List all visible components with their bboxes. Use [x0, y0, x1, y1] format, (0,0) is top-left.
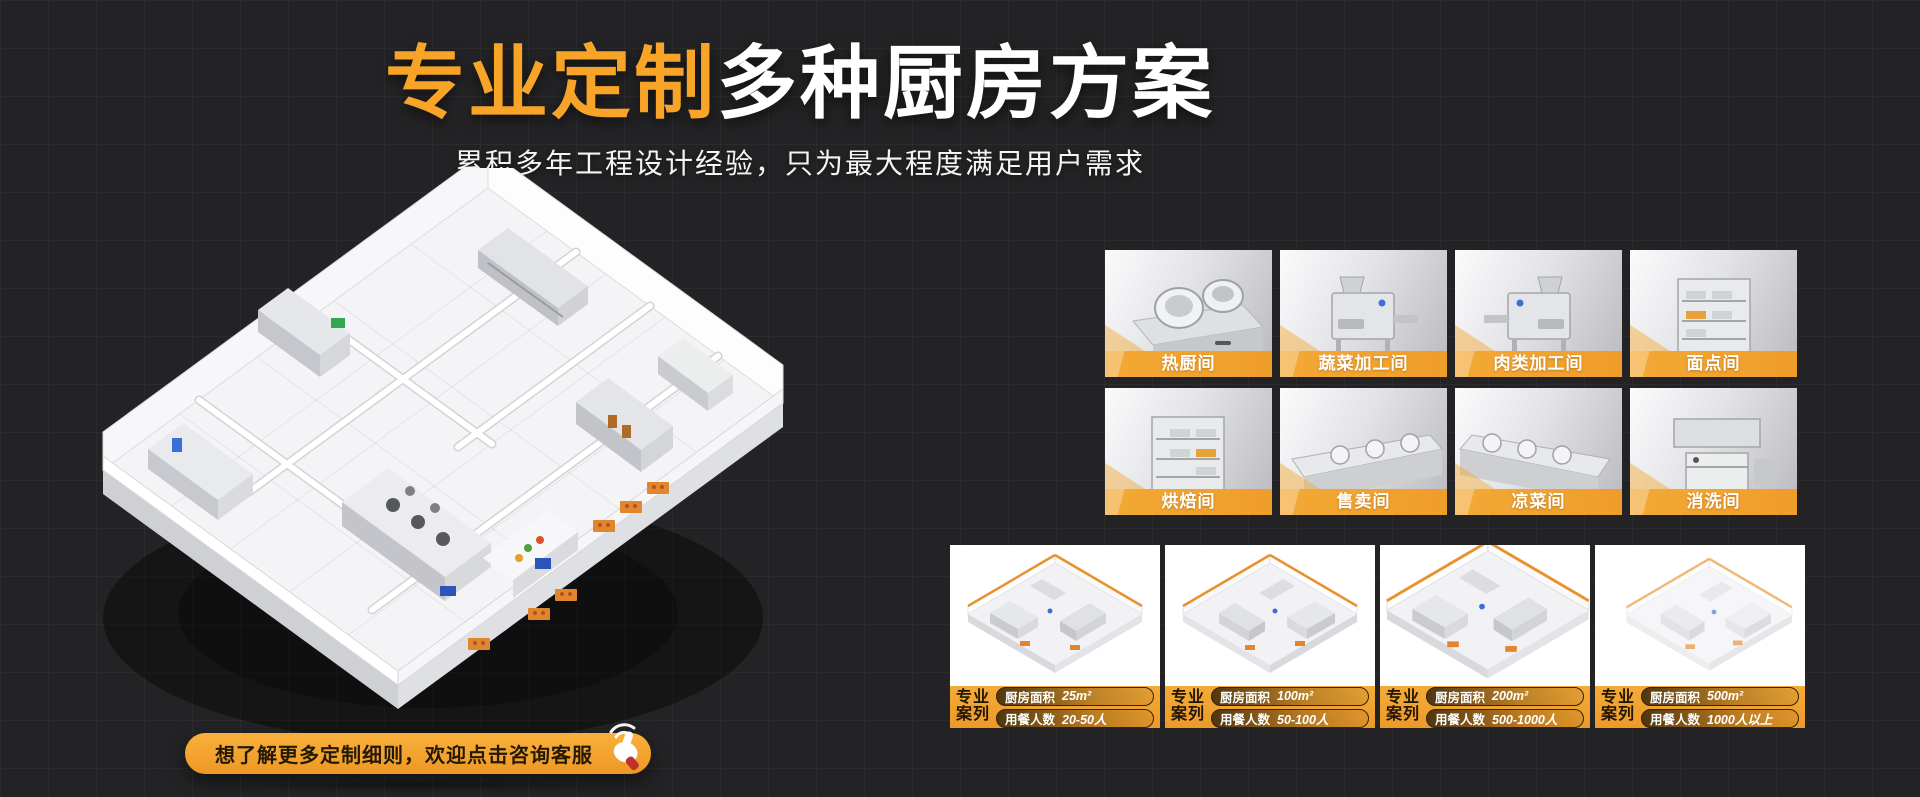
case-badge-line2: 案列 [1601, 707, 1635, 724]
case-footer: 专业 案列 厨房面积 500m² 用餐人数 1000人以上 [1595, 686, 1805, 728]
diners-label: 用餐人数 [1435, 709, 1485, 728]
kitchen-area-pill: 厨房面积 100m² [1211, 687, 1369, 706]
title-rest: 多种厨房方案 [717, 39, 1215, 128]
kitchen-area-label: 厨房面积 [1435, 687, 1485, 706]
room-label: 面点间 [1630, 351, 1797, 377]
case-badge: 专业 案列 [1386, 690, 1420, 724]
diners-value: 1000人以上 [1707, 709, 1772, 728]
case-render-illustration [1165, 545, 1375, 686]
consult-service-button[interactable]: 想了解更多定制细则，欢迎点击咨询客服 [185, 733, 651, 774]
case-kitchen-render [1165, 545, 1375, 686]
hand-click-icon [601, 719, 649, 771]
kitchen-area-label: 厨房面积 [1005, 687, 1055, 706]
kitchen-area-pill: 厨房面积 500m² [1641, 687, 1799, 706]
case-badge-line2: 案列 [1386, 707, 1420, 724]
case-badge: 专业 案列 [1601, 690, 1635, 724]
diners-label: 用餐人数 [1650, 709, 1700, 728]
room-tile-hot-kitchen: 热厨间 [1105, 250, 1272, 377]
kitchen-area-value: 100m² [1277, 689, 1313, 703]
room-tile-washing: 消洗间 [1630, 388, 1797, 515]
room-label: 蔬菜加工间 [1280, 351, 1447, 377]
room-tile-meat-processing: 肉类加工间 [1455, 250, 1622, 377]
case-kitchen-render [1595, 545, 1805, 686]
title-highlight: 专业定制 [385, 39, 717, 128]
kitchen-area-value: 500m² [1707, 689, 1743, 703]
case-specs: 厨房面积 500m² 用餐人数 1000人以上 [1641, 687, 1799, 728]
case-card-100m2: 专业 案列 厨房面积 100m² 用餐人数 50-100人 [1165, 545, 1375, 728]
kitchen-area-label: 厨房面积 [1220, 687, 1270, 706]
consult-service-label: 想了解更多定制细则，欢迎点击咨询客服 [215, 739, 593, 768]
case-footer: 专业 案列 厨房面积 200m² 用餐人数 500-1000人 [1380, 686, 1590, 728]
case-badge-line1: 专业 [1171, 690, 1205, 707]
case-gallery: 专业 案列 厨房面积 25m² 用餐人数 20-50人 专业 案列 [950, 545, 1805, 728]
case-specs: 厨房面积 200m² 用餐人数 500-1000人 [1426, 687, 1584, 728]
page-title: 专业定制多种厨房方案 [0, 42, 1600, 126]
case-footer: 专业 案列 厨房面积 25m² 用餐人数 20-50人 [950, 686, 1160, 728]
case-badge-line2: 案列 [956, 707, 990, 724]
case-specs: 厨房面积 100m² 用餐人数 50-100人 [1211, 687, 1369, 728]
floorplan-svg [88, 168, 800, 746]
case-card-500m2: 专业 案列 厨房面积 500m² 用餐人数 1000人以上 [1595, 545, 1805, 728]
kitchen-area-value: 200m² [1492, 689, 1528, 703]
case-badge-line1: 专业 [956, 690, 990, 707]
case-kitchen-render [950, 545, 1160, 686]
room-tile-baking: 烘焙间 [1105, 388, 1272, 515]
case-render-illustration [1595, 545, 1805, 686]
case-card-200m2: 专业 案列 厨房面积 200m² 用餐人数 500-1000人 [1380, 545, 1590, 728]
room-label: 烘焙间 [1105, 489, 1272, 515]
case-badge-line1: 专业 [1601, 690, 1635, 707]
case-specs: 厨房面积 25m² 用餐人数 20-50人 [996, 687, 1154, 728]
room-tile-vegetable-processing: 蔬菜加工间 [1280, 250, 1447, 377]
kitchen-area-value: 25m² [1062, 689, 1091, 703]
diners-pill: 用餐人数 50-100人 [1211, 709, 1369, 728]
case-footer: 专业 案列 厨房面积 100m² 用餐人数 50-100人 [1165, 686, 1375, 728]
room-label: 热厨间 [1105, 351, 1272, 377]
case-badge: 专业 案列 [1171, 690, 1205, 724]
kitchen-area-label: 厨房面积 [1650, 687, 1700, 706]
diners-pill: 用餐人数 20-50人 [996, 709, 1154, 728]
room-gallery: 热厨间 蔬菜加工间 肉类加工间 面点间 烘焙间 售卖间 凉菜间 [1105, 250, 1797, 515]
room-label: 售卖间 [1280, 489, 1447, 515]
kitchen-area-pill: 厨房面积 200m² [1426, 687, 1584, 706]
hero-header: 专业定制多种厨房方案 累积多年工程设计经验，只为最大程度满足用户需求 [0, 42, 1600, 182]
room-label: 凉菜间 [1455, 489, 1622, 515]
room-tile-sales: 售卖间 [1280, 388, 1447, 515]
diners-pill: 用餐人数 500-1000人 [1426, 709, 1584, 728]
diners-pill: 用餐人数 1000人以上 [1641, 709, 1799, 728]
diners-value: 50-100人 [1277, 709, 1328, 728]
case-render-illustration [1380, 545, 1590, 686]
diners-label: 用餐人数 [1220, 709, 1270, 728]
kitchen-floorplan-illustration [88, 168, 800, 746]
case-badge-line2: 案列 [1171, 707, 1205, 724]
room-tile-pastry: 面点间 [1630, 250, 1797, 377]
room-tile-cold-dish: 凉菜间 [1455, 388, 1622, 515]
diners-label: 用餐人数 [1005, 709, 1055, 728]
diners-value: 500-1000人 [1492, 709, 1557, 728]
diners-value: 20-50人 [1062, 709, 1106, 728]
kitchen-area-pill: 厨房面积 25m² [996, 687, 1154, 706]
case-card-25m2: 专业 案列 厨房面积 25m² 用餐人数 20-50人 [950, 545, 1160, 728]
case-kitchen-render [1380, 545, 1590, 686]
room-label: 消洗间 [1630, 489, 1797, 515]
case-badge: 专业 案列 [956, 690, 990, 724]
case-badge-line1: 专业 [1386, 690, 1420, 707]
room-label: 肉类加工间 [1455, 351, 1622, 377]
case-render-illustration [950, 545, 1160, 686]
